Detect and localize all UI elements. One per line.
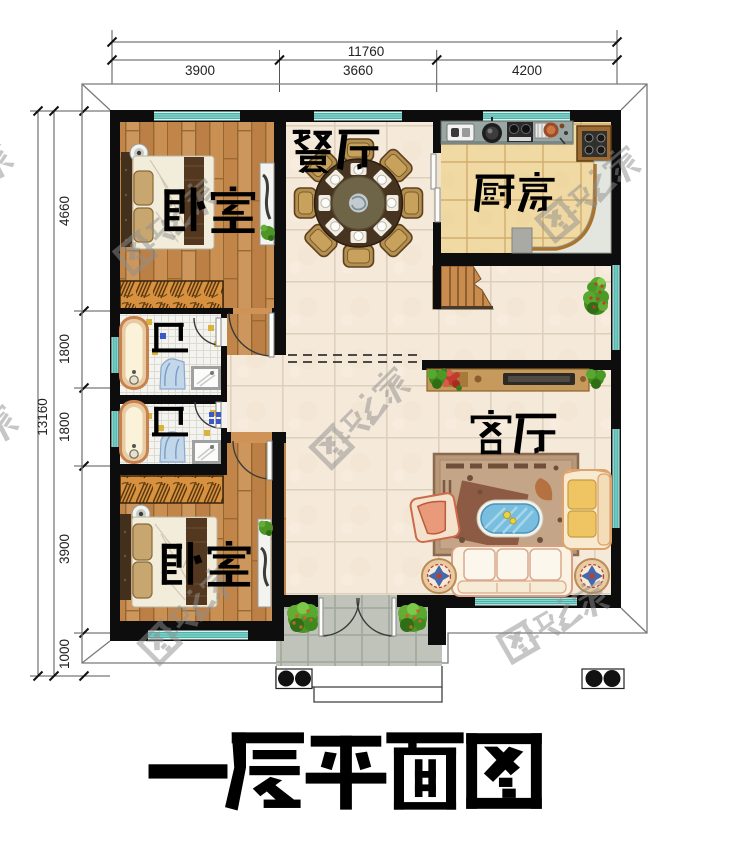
svg-text:1800: 1800 — [57, 412, 72, 442]
svg-text:4660: 4660 — [57, 196, 72, 226]
svg-text:13160: 13160 — [35, 398, 50, 436]
svg-text:1000: 1000 — [57, 639, 72, 669]
svg-text:3900: 3900 — [185, 63, 215, 78]
svg-text:3660: 3660 — [343, 63, 373, 78]
svg-text:11760: 11760 — [348, 44, 385, 59]
svg-text:4200: 4200 — [512, 63, 542, 78]
svg-text:1800: 1800 — [57, 334, 72, 364]
svg-text:3900: 3900 — [57, 534, 72, 564]
